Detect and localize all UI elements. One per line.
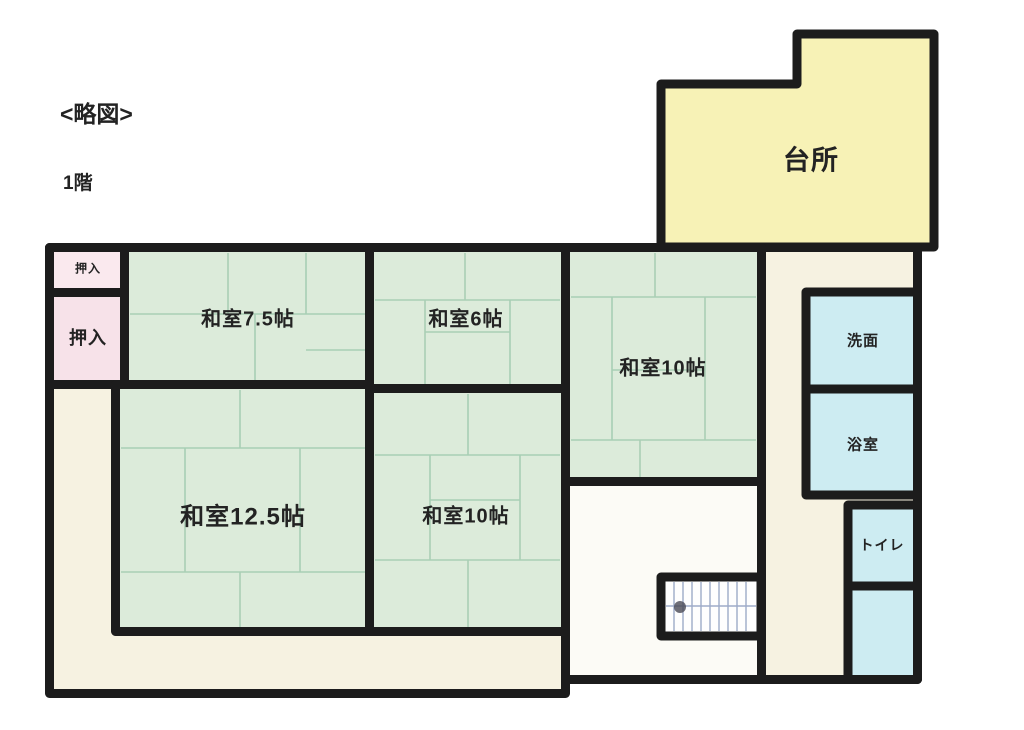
kitchen-label: 台所 [783,139,839,178]
closet-bottom-label: 押入 [69,324,107,350]
floor-label: 1階 [63,168,93,195]
staircase-mark [674,601,686,613]
closet-top-label: 押入 [75,260,101,277]
bathroom-label: 浴室 [847,434,879,455]
utility-room [848,586,918,680]
toilet-label: トイレ [860,535,905,555]
washitsu-10-center-label: 和室10帖 [422,500,509,529]
washitsu-10-right-label: 和室10帖 [619,352,706,381]
washroom-label: 洗面 [847,330,879,351]
washitsu-6-label: 和室6帖 [428,303,503,332]
washitsu-7-5-label: 和室7.5帖 [201,303,295,332]
washitsu-12-5-label: 和室12.5帖 [180,497,306,532]
sketch-title: <略図> [60,95,133,129]
floor-plan-drawing [0,0,1024,730]
floor-plan: <略図> 1階 台所 押入 押入 和室7.5帖 和室6帖 和室10帖 和室12.… [0,0,1024,730]
